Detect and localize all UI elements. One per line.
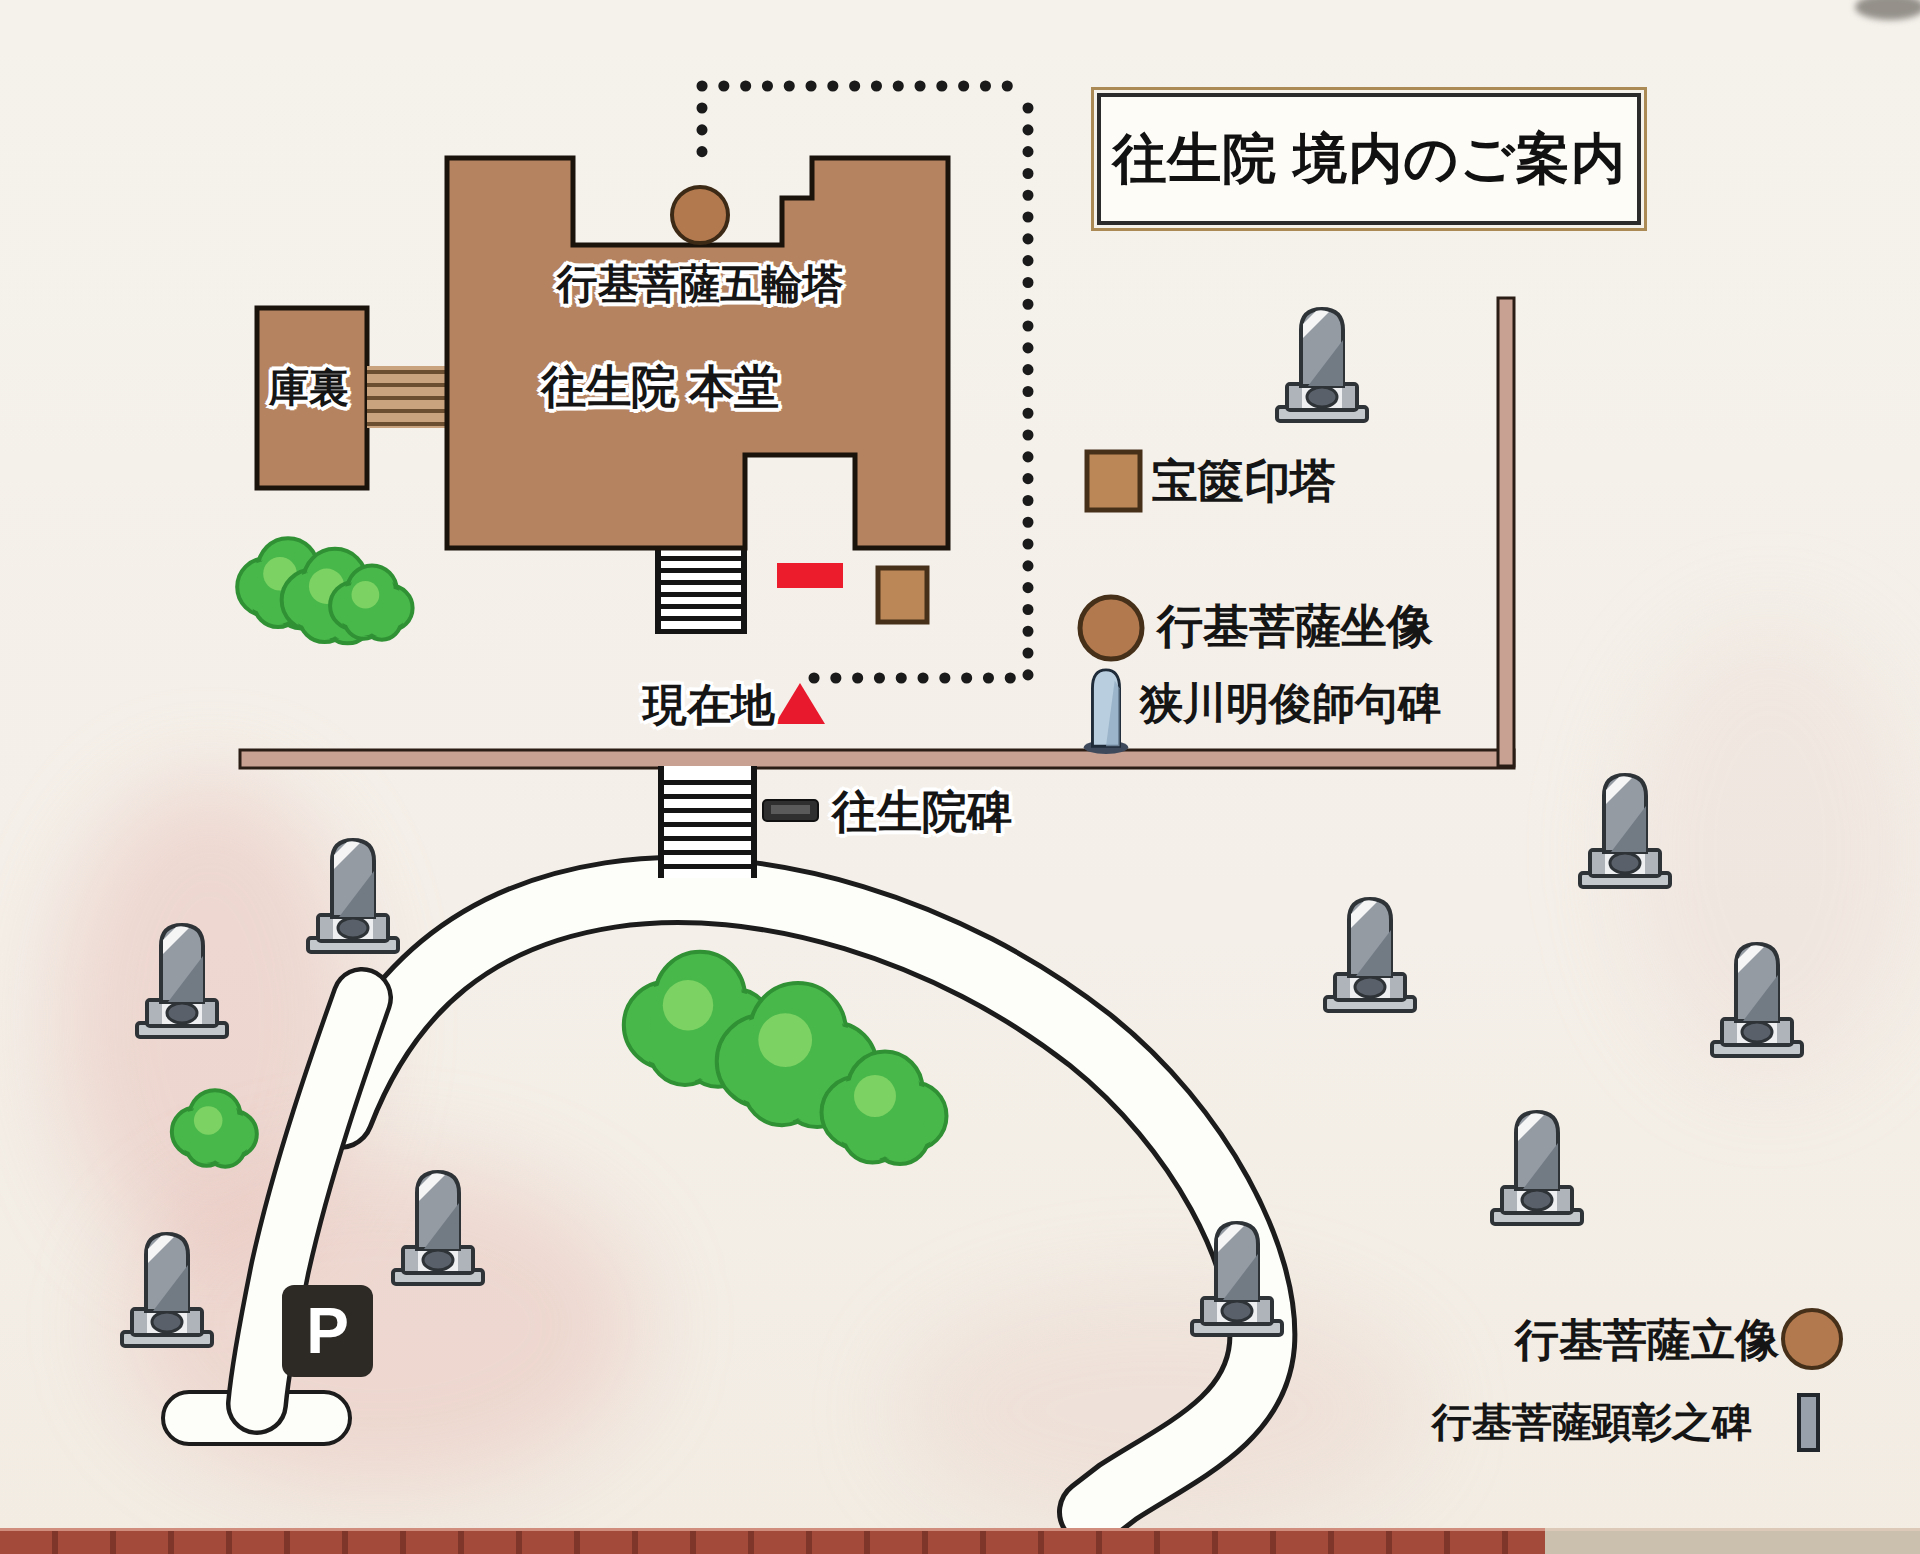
tombstone-icon bbox=[1492, 1112, 1582, 1224]
title-box: 往生院 境内のご案内 bbox=[1097, 93, 1641, 225]
legend-square-icon bbox=[1087, 452, 1140, 510]
tombstone-icon bbox=[1277, 309, 1367, 421]
tree-icon bbox=[172, 1090, 257, 1167]
tombstone-icon bbox=[393, 1172, 483, 1284]
tombstone-icon bbox=[1325, 899, 1415, 1011]
legend-circle-icon bbox=[1080, 597, 1142, 659]
legend-label-hokyointo: 宝篋印塔 bbox=[1152, 458, 1336, 504]
stairs-lower bbox=[658, 766, 757, 878]
tombstone-icon bbox=[1712, 944, 1802, 1056]
tombstone-icon bbox=[122, 1234, 212, 1346]
legend-label-seated-statue: 行基菩薩坐像 bbox=[1157, 603, 1433, 649]
parking-sign: P bbox=[282, 1285, 373, 1377]
red-marker bbox=[777, 563, 843, 588]
pavement-light bbox=[1545, 1528, 1920, 1554]
legend-label-kensho-stele: 行基菩薩顕彰之碑 bbox=[1432, 1402, 1752, 1442]
label-ojoin-monument: 往生院碑 bbox=[832, 789, 1012, 834]
legend-stele-icon bbox=[1799, 1395, 1818, 1450]
page-title: 往生院 境内のご案内 bbox=[1112, 123, 1626, 196]
wall-horizontal bbox=[240, 750, 1514, 768]
parking-letter: P bbox=[306, 1294, 349, 1368]
legend-label-haiku-monument: 狭川明俊師句碑 bbox=[1140, 682, 1441, 725]
legend-label-standing-statue: 行基菩薩立像 bbox=[1515, 1318, 1779, 1362]
corridor bbox=[367, 366, 447, 428]
label-current-location: 現在地 bbox=[643, 683, 775, 727]
current-location-triangle bbox=[775, 683, 825, 724]
temple-grounds-map-sign: 往生院 境内のご案内 行基菩薩五輪塔 往生院 本堂 庫裏 現在地 往生院碑 宝篋… bbox=[0, 0, 1920, 1554]
label-hondo: 往生院 本堂 bbox=[541, 364, 779, 409]
tombstone-icon bbox=[1580, 775, 1670, 887]
trees-layer bbox=[172, 538, 947, 1167]
ojoin-monument-icon bbox=[763, 800, 818, 821]
legend-statue-icon bbox=[1084, 670, 1128, 754]
label-kuri: 庫裏 bbox=[269, 367, 349, 407]
gorinto-icon bbox=[672, 187, 728, 243]
legend-standing-statue-icon bbox=[1783, 1310, 1841, 1368]
label-gorinto: 行基菩薩五輪塔 bbox=[557, 264, 844, 305]
hokyointo-on-map bbox=[878, 568, 927, 622]
tombstone-icon bbox=[137, 925, 227, 1037]
tombstone-icon bbox=[308, 840, 398, 952]
wall-vertical bbox=[1498, 298, 1514, 766]
stairs-upper bbox=[655, 544, 747, 634]
